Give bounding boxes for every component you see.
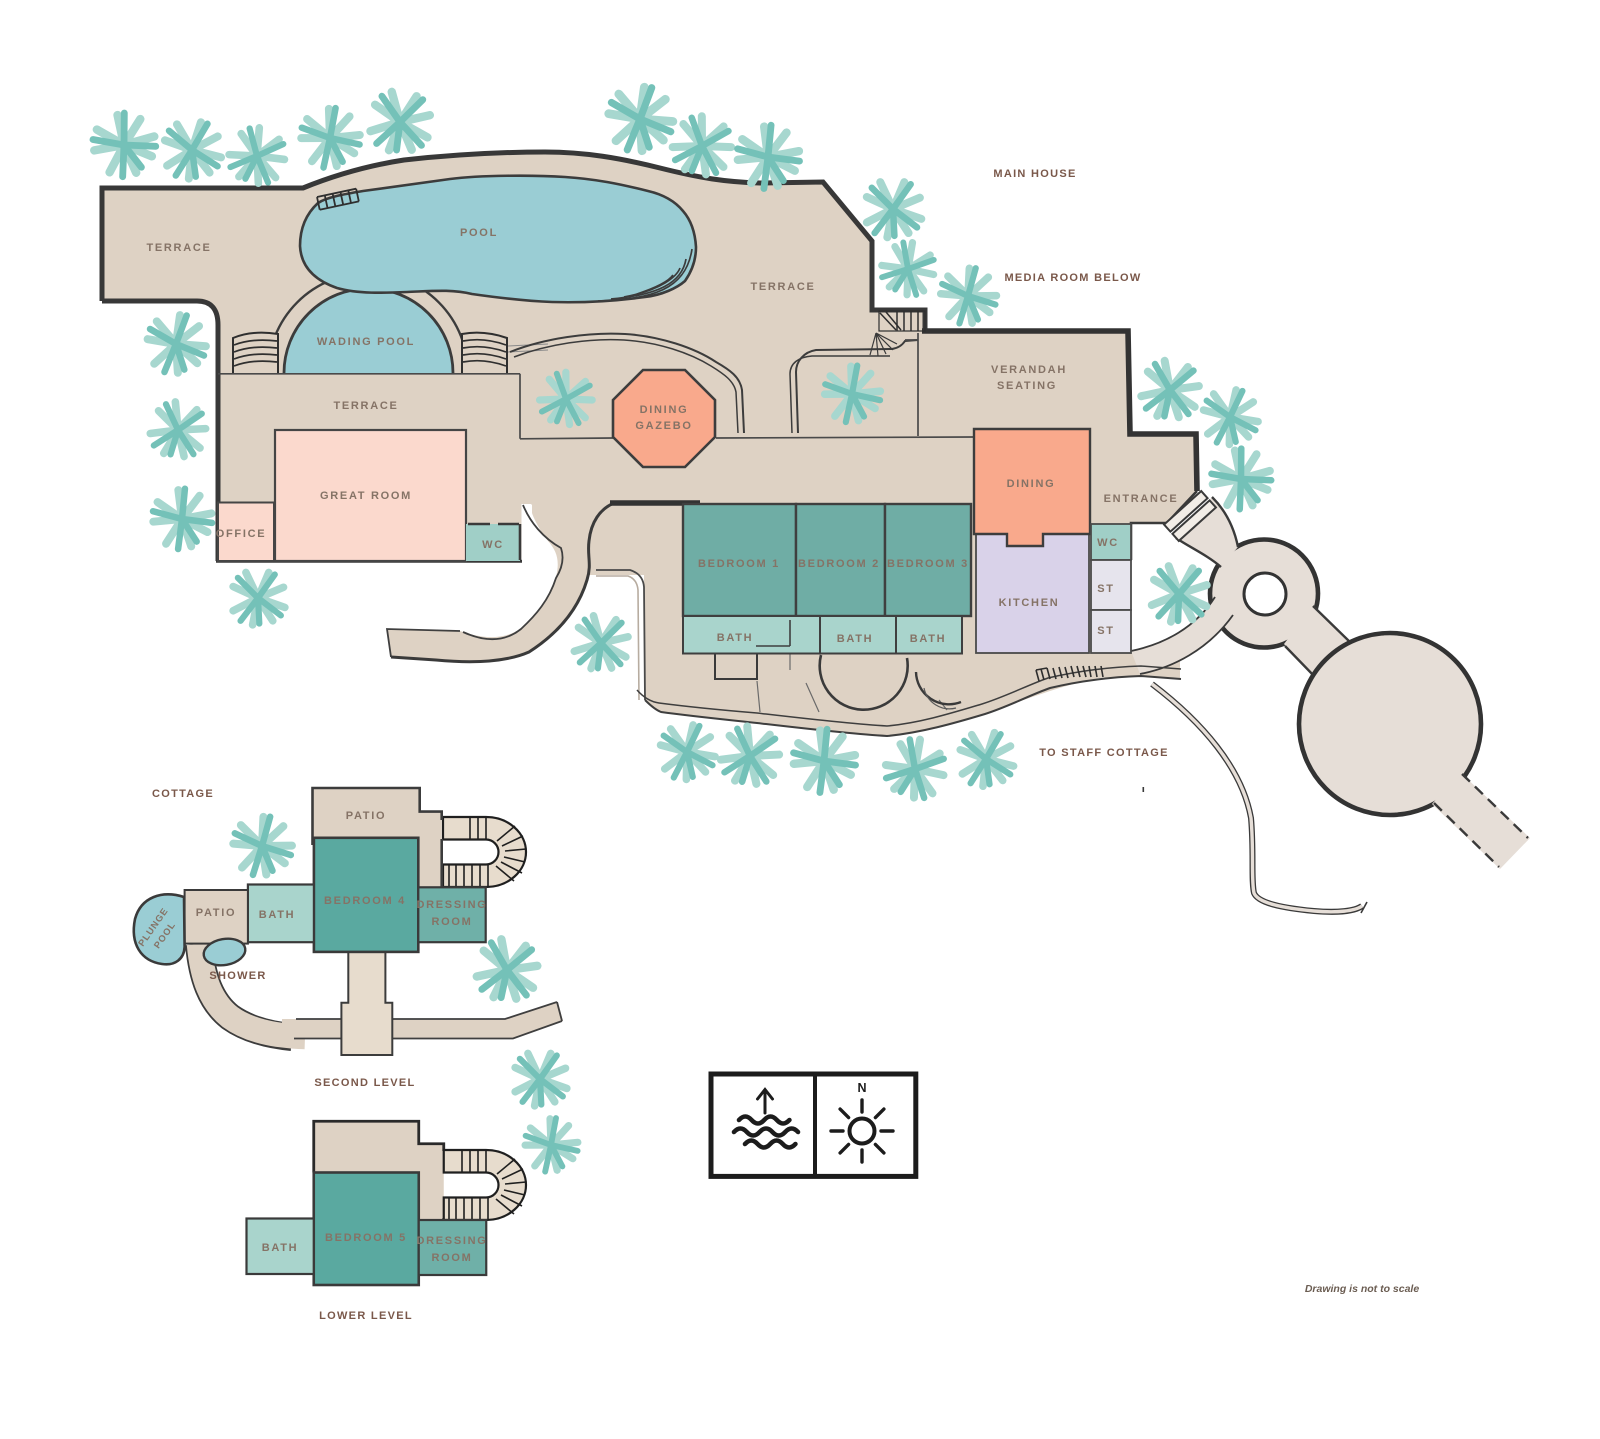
svg-text:BEDROOM 4: BEDROOM 4 bbox=[324, 895, 406, 907]
svg-text:BEDROOM 5: BEDROOM 5 bbox=[325, 1232, 407, 1244]
svg-text:BEDROOM 2: BEDROOM 2 bbox=[798, 558, 880, 570]
svg-text:WC: WC bbox=[482, 539, 504, 551]
svg-text:KITCHEN: KITCHEN bbox=[999, 597, 1060, 609]
svg-text:ROOM: ROOM bbox=[431, 916, 472, 928]
svg-text:ENTRANCE: ENTRANCE bbox=[1104, 493, 1179, 505]
svg-text:SEATING: SEATING bbox=[997, 380, 1057, 392]
svg-text:DINING: DINING bbox=[640, 404, 689, 416]
svg-text:POOL: POOL bbox=[460, 227, 498, 239]
svg-text:GREAT ROOM: GREAT ROOM bbox=[320, 490, 412, 502]
svg-text:BATH: BATH bbox=[837, 633, 874, 645]
svg-text:TERRACE: TERRACE bbox=[750, 281, 815, 293]
svg-text:OFFICE: OFFICE bbox=[216, 528, 267, 540]
svg-text:WC: WC bbox=[1097, 537, 1119, 549]
svg-text:SECOND LEVEL: SECOND LEVEL bbox=[314, 1077, 415, 1089]
svg-text:COTTAGE: COTTAGE bbox=[152, 788, 214, 800]
svg-text:LOWER LEVEL: LOWER LEVEL bbox=[319, 1310, 413, 1322]
svg-text:TERRACE: TERRACE bbox=[333, 400, 398, 412]
svg-text:TO STAFF COTTAGE: TO STAFF COTTAGE bbox=[1039, 747, 1169, 759]
svg-text:ST: ST bbox=[1097, 583, 1114, 595]
svg-text:BATH: BATH bbox=[262, 1242, 299, 1254]
svg-text:SHOWER: SHOWER bbox=[209, 970, 266, 982]
svg-text:DRESSING: DRESSING bbox=[416, 899, 487, 911]
svg-text:ST: ST bbox=[1097, 625, 1114, 637]
svg-text:GAZEBO: GAZEBO bbox=[635, 420, 692, 432]
svg-text:PATIO: PATIO bbox=[196, 907, 236, 919]
svg-text:WADING POOL: WADING POOL bbox=[317, 336, 415, 348]
svg-text:BATH: BATH bbox=[910, 633, 947, 645]
svg-text:DRESSING: DRESSING bbox=[416, 1235, 487, 1247]
svg-text:BEDROOM 3: BEDROOM 3 bbox=[887, 558, 969, 570]
svg-text:VERANDAH: VERANDAH bbox=[991, 364, 1067, 376]
svg-text:Drawing is not to scale: Drawing is not to scale bbox=[1305, 1283, 1420, 1295]
svg-text:TERRACE: TERRACE bbox=[146, 242, 211, 254]
svg-text:PATIO: PATIO bbox=[346, 810, 386, 822]
svg-text:N: N bbox=[857, 1081, 866, 1095]
svg-text:MEDIA ROOM BELOW: MEDIA ROOM BELOW bbox=[1004, 272, 1141, 284]
svg-text:ROOM: ROOM bbox=[431, 1252, 472, 1264]
svg-text:BEDROOM 1: BEDROOM 1 bbox=[698, 558, 780, 570]
svg-text:DINING: DINING bbox=[1007, 478, 1056, 490]
svg-text:MAIN HOUSE: MAIN HOUSE bbox=[993, 168, 1076, 180]
svg-text:BATH: BATH bbox=[717, 632, 754, 644]
svg-text:BATH: BATH bbox=[259, 909, 296, 921]
